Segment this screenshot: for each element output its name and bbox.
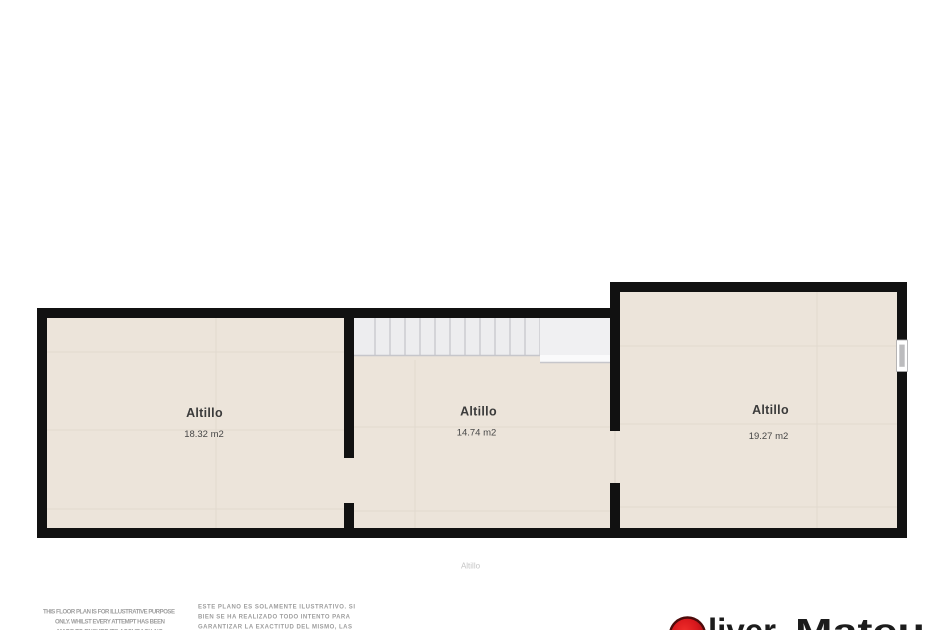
svg-text:14.74 m2: 14.74 m2 (457, 428, 497, 439)
svg-text:GARANTIZAR LA EXACTITUD DEL MI: GARANTIZAR LA EXACTITUD DEL MISMO, LAS (198, 625, 352, 630)
svg-text:THIS FLOOR PLAN IS FOR ILLUSTR: THIS FLOOR PLAN IS FOR ILLUSTRATIVE PURP… (43, 610, 175, 616)
svg-text:ESTE PLANO ES SOLAMENTE ILUSTR: ESTE PLANO ES SOLAMENTE ILUSTRATIVO. SI (198, 605, 355, 611)
svg-text:BIEN SE HA REALIZADO TODO INTE: BIEN SE HA REALIZADO TODO INTENTO PARA (198, 615, 351, 621)
svg-text:Altillo: Altillo (461, 562, 481, 571)
svg-text:Altillo: Altillo (752, 403, 789, 417)
svg-text:19.27 m2: 19.27 m2 (749, 431, 789, 442)
svg-text:Altillo: Altillo (460, 405, 497, 419)
svg-text:ONLY. WHILST EVERY ATTEMPT HAS: ONLY. WHILST EVERY ATTEMPT HAS BEEN (55, 620, 165, 626)
svg-text:liver: liver (708, 613, 776, 630)
svg-text:18.32 m2: 18.32 m2 (184, 429, 224, 440)
svg-text:Mateu: Mateu (795, 613, 925, 630)
svg-text:Altillo: Altillo (186, 406, 223, 420)
